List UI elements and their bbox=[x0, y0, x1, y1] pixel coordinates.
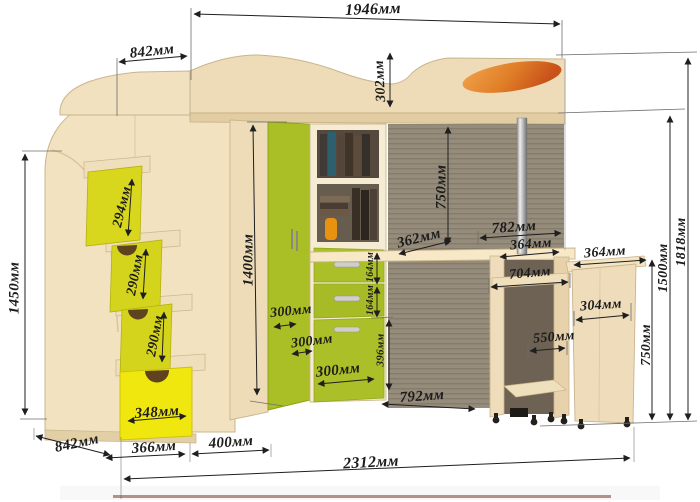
furniture-scene bbox=[0, 0, 700, 502]
dimension-diagram: 1946мм 842мм 302мм 1450мм 294мм 290мм 29… bbox=[0, 0, 700, 502]
watermark-band bbox=[60, 486, 660, 500]
rolling-cabinet bbox=[566, 256, 646, 429]
bottom-accent-line bbox=[113, 495, 611, 498]
bed-left-rail bbox=[60, 71, 190, 115]
desk-unit-base bbox=[510, 408, 528, 417]
shelf-column bbox=[310, 124, 386, 402]
door-handle bbox=[296, 231, 298, 251]
door-handle bbox=[291, 229, 293, 249]
loft-bed bbox=[60, 55, 565, 124]
stair-drawer bbox=[120, 367, 192, 440]
stairs-unit bbox=[45, 90, 235, 443]
cabinet-body bbox=[572, 264, 636, 423]
support-pole bbox=[517, 118, 527, 254]
wardrobe-door bbox=[268, 122, 310, 410]
bottle bbox=[325, 218, 337, 240]
wardrobe bbox=[230, 120, 310, 420]
